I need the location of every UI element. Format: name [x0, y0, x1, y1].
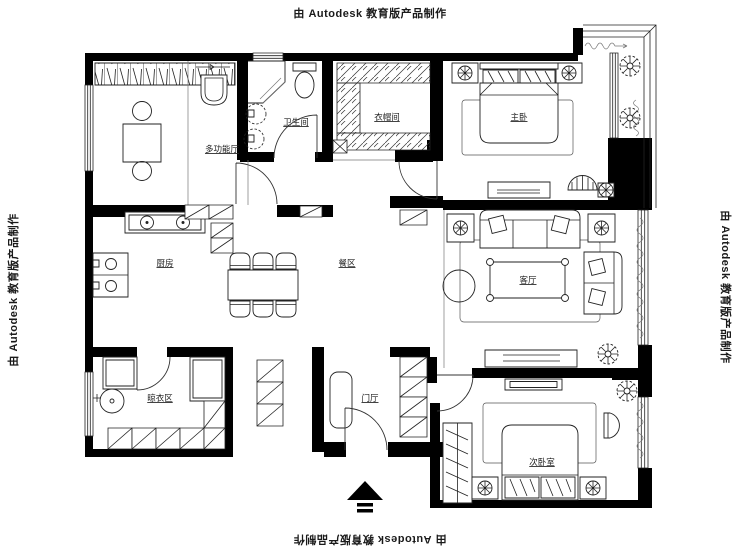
lamp-icon	[586, 481, 600, 495]
laundry-cabinets	[108, 401, 225, 449]
tv-second-bedroom	[505, 379, 562, 390]
room-dining: 餐区	[228, 253, 356, 317]
door-multifunction	[236, 163, 277, 204]
window-left-lower	[85, 372, 93, 436]
window-left-upper	[85, 85, 93, 171]
bed-master	[480, 63, 558, 143]
door-entry	[345, 408, 387, 450]
dining-chair	[253, 301, 273, 317]
door-master-bedroom	[399, 161, 437, 199]
lamp-icon	[454, 221, 468, 235]
nightstand	[556, 63, 582, 83]
plant-icon	[620, 56, 640, 76]
reading-chair	[604, 413, 619, 438]
door-mat	[330, 372, 352, 428]
sink	[246, 104, 266, 124]
dining-chair	[230, 301, 250, 317]
room-laundry: 晾衣区	[93, 357, 225, 449]
room-living: 客厅	[400, 210, 622, 368]
cabinet	[190, 357, 225, 401]
room-label-bathroom: 卫生间	[283, 117, 309, 127]
lamp-icon	[562, 66, 576, 80]
room-multifunction: 多功能厅	[95, 61, 239, 205]
washing-machine	[93, 389, 124, 413]
side-table	[598, 183, 614, 197]
plant-icon	[620, 108, 640, 128]
corner-shelf	[400, 210, 427, 225]
kitchen-cabinets	[185, 205, 322, 253]
window-bedroom-right	[637, 397, 648, 468]
cabinet	[103, 357, 137, 389]
room-label-entry: 门厅	[361, 393, 379, 403]
shaft-hatch	[257, 360, 283, 426]
window-living-right	[637, 210, 648, 345]
shoe-cabinet	[400, 357, 427, 437]
tv-cabinet-living	[485, 350, 577, 367]
sofa-three-seat	[480, 210, 580, 248]
room-label-second-bedroom: 次卧室	[529, 457, 555, 467]
entry-arrow-icon	[347, 481, 383, 513]
room-entry: 门厅	[257, 357, 427, 437]
dining-chair	[276, 301, 296, 317]
side-table	[447, 214, 474, 242]
lamp-icon	[458, 66, 472, 80]
floorplan-screenshot: 由 Autodesk 教育版产品制作 由 Autodesk 教育版产品制作 由 …	[0, 0, 740, 555]
duct	[333, 140, 347, 153]
room-label-laundry: 晾衣区	[147, 393, 173, 403]
toilet	[293, 63, 316, 98]
lamp-icon	[599, 183, 613, 197]
window-master-balcony	[610, 53, 618, 138]
room-label-dining: 餐区	[338, 258, 356, 268]
door-laundry	[137, 357, 170, 390]
room-label-cloakroom: 衣帽间	[374, 112, 400, 122]
dining-chair	[230, 253, 250, 269]
nightstand	[452, 63, 478, 83]
nightstand	[580, 477, 606, 499]
plant-icon	[598, 344, 618, 364]
kitchen-sink	[93, 253, 128, 297]
room-master-bedroom: 主卧	[452, 63, 614, 198]
room-cloakroom: 衣帽间	[333, 63, 430, 153]
dining-chair	[276, 253, 296, 269]
room-second-bedroom: 次卧室	[443, 379, 637, 503]
wardrobe-second-bedroom	[443, 423, 472, 503]
plant-icon	[617, 381, 637, 401]
lamp-icon	[478, 481, 492, 495]
room-label-kitchen: 厨房	[156, 258, 173, 268]
tv-cabinet-master	[488, 182, 550, 198]
nightstand	[472, 477, 498, 499]
side-table	[588, 214, 615, 242]
dining-chair	[253, 253, 273, 269]
round-table	[443, 270, 475, 302]
fan-chair	[568, 176, 597, 191]
floor-plan-drawing: 多功能厅 卫生间 衣帽间	[0, 0, 740, 555]
room-label-multifunction: 多功能厅	[205, 144, 240, 154]
room-label-living: 客厅	[519, 275, 537, 285]
door-second-bedroom	[437, 375, 473, 411]
lamp-icon	[595, 221, 609, 235]
window-top	[253, 53, 283, 61]
sofa-two-seat	[584, 252, 622, 314]
room-label-master-bedroom: 主卧	[510, 112, 528, 122]
room-kitchen: 厨房	[93, 205, 322, 297]
